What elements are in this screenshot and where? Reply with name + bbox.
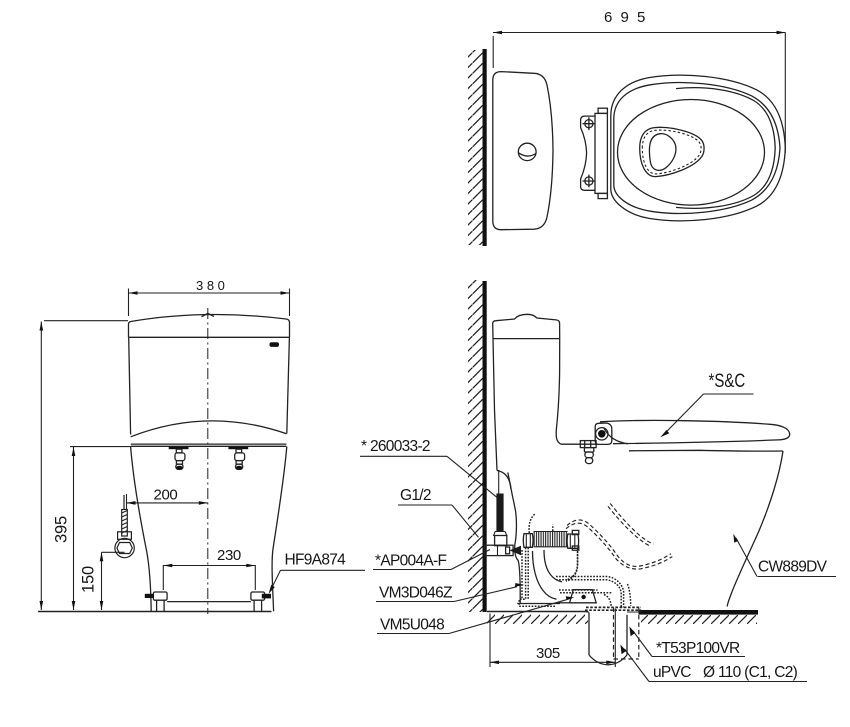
- svg-text:305: 305: [536, 645, 560, 662]
- svg-text:150: 150: [80, 566, 98, 593]
- svg-text:*S&C: *S&C: [709, 370, 746, 391]
- svg-text:VM3D046Z: VM3D046Z: [379, 585, 452, 602]
- svg-text:Ø 110 (C1, C2): Ø 110 (C1, C2): [703, 664, 798, 681]
- svg-text:200: 200: [154, 487, 178, 504]
- svg-text:3 8 0: 3 8 0: [196, 278, 225, 293]
- svg-text:HF9A874: HF9A874: [285, 552, 347, 569]
- svg-text:*T53P100VR: *T53P100VR: [656, 640, 740, 657]
- svg-text:G1/2: G1/2: [400, 487, 431, 504]
- svg-text:* 260033-2: * 260033-2: [361, 438, 430, 455]
- svg-text:VM5U048: VM5U048: [380, 617, 444, 634]
- svg-text:CW889DV: CW889DV: [758, 559, 828, 576]
- svg-text:395: 395: [53, 516, 71, 543]
- svg-text:*AP004A-F: *AP004A-F: [375, 553, 446, 570]
- svg-text:uPVC: uPVC: [653, 664, 691, 681]
- svg-text:230: 230: [217, 547, 241, 564]
- svg-text:6 9 5: 6 9 5: [604, 9, 647, 26]
